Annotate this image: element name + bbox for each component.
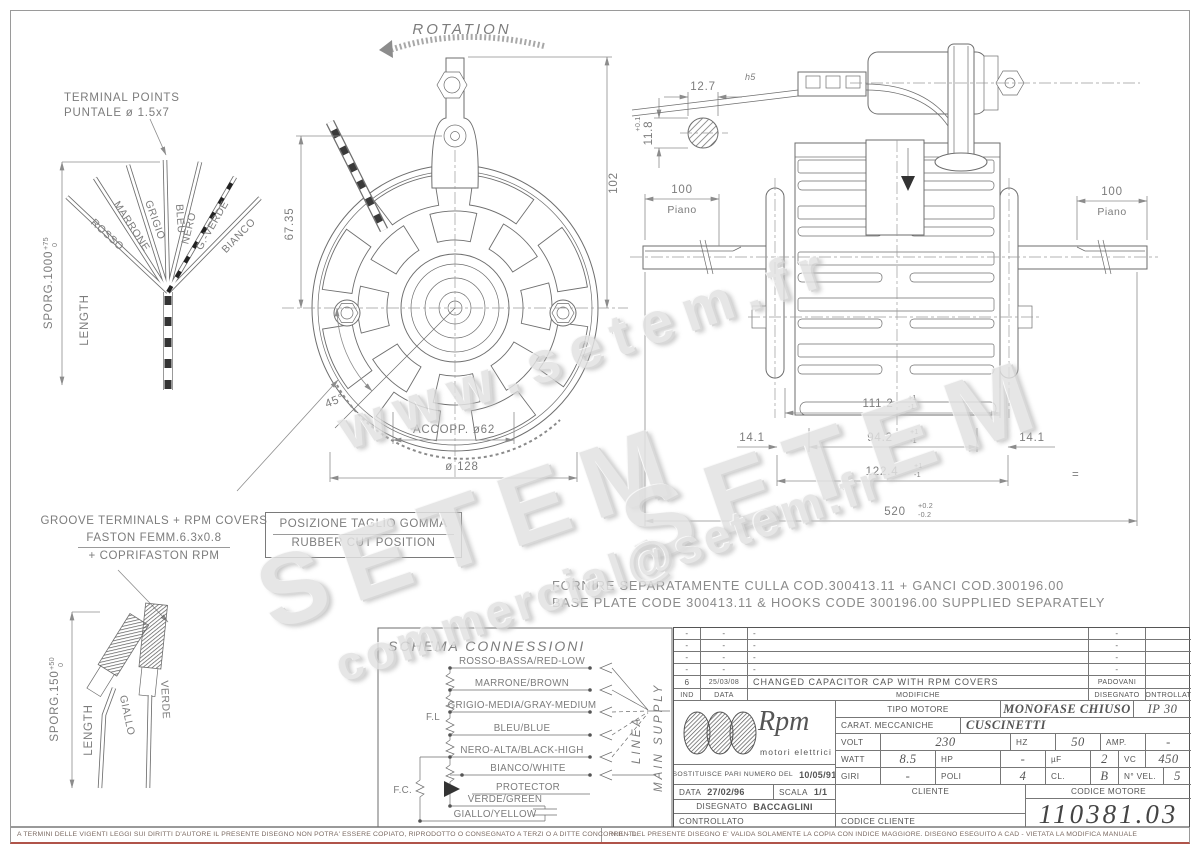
poli-label: POLI	[936, 768, 1001, 785]
ip-value: IP 30	[1134, 701, 1191, 718]
svg-text:-1: -1	[914, 470, 921, 479]
amp-label: AMP.	[1101, 734, 1146, 751]
hz-value: 50	[1056, 734, 1101, 751]
dim-length150-label: LENGTH	[83, 704, 95, 755]
dim-141-right: 14.1	[1019, 432, 1045, 444]
schema-wire-6: PROTECTOR	[496, 782, 560, 793]
giri-value: -	[881, 768, 936, 785]
footer-strip: A TERMINI DELLE VIGENTI LEGGI SUI DIRITT…	[10, 827, 1190, 844]
scala-cell: SCALA 1/1	[774, 785, 836, 800]
side-view: 12.7 h5 11.8 +0.1 -0.1	[630, 44, 1158, 526]
amp-value: -	[1146, 734, 1191, 751]
volt-label: VOLT	[836, 734, 881, 751]
wire-label-giallo: GIALLO	[117, 694, 137, 737]
wire-label-verde: VERDE	[158, 680, 172, 719]
title-block: - - - - - - - - - - - - - - - - 6 25/03/…	[673, 627, 1190, 828]
dim-6735-label: 67.35	[284, 208, 296, 241]
vc-value: 450	[1146, 751, 1191, 768]
dim-102-label: 102	[608, 172, 620, 194]
hook-cover	[866, 140, 924, 235]
cl-value: B	[1091, 768, 1119, 785]
rev-author: PADOVANI	[1089, 676, 1146, 689]
svg-text:+1: +1	[908, 393, 917, 402]
rotation-arrow	[390, 37, 544, 50]
groove-note-line2: FASTON FEMM.6.3x0.8	[78, 530, 229, 548]
disegnato-value: BACCAGLINI	[753, 802, 813, 812]
nvel-label: N° VEL.	[1119, 768, 1164, 785]
schema-fc-label: F.C.	[393, 785, 412, 796]
terminal-block	[798, 72, 866, 96]
hp-value: -	[1001, 751, 1046, 768]
data-value: 27/02/96	[707, 787, 744, 797]
svg-text:+1: +1	[910, 427, 919, 436]
schema-wire-0: ROSSO-BASSA/RED-LOW	[459, 656, 585, 667]
codice-motore-header: CODICE MOTORE	[1026, 785, 1191, 799]
schema-wire-2: GRIGIO-MEDIA/GRAY-MEDIUM	[448, 700, 597, 711]
uf-label: µF	[1046, 751, 1091, 768]
uf-value: 2	[1091, 751, 1119, 768]
schema-wire-4: NERO-ALTA/BLACK-HIGH	[460, 745, 583, 756]
dim-128-label: ø 128	[445, 461, 478, 473]
left-shaft	[643, 246, 766, 269]
data-cell: DATA 27/02/96	[674, 785, 774, 800]
poli-value: 4	[1001, 768, 1046, 785]
mounting-strap	[948, 44, 974, 162]
giri-label: GIRI	[836, 768, 881, 785]
rev-header-ind: IND	[674, 689, 701, 701]
dim-127-tol: h5	[745, 72, 756, 82]
schema-main-supply-label: MAIN SUPPLY	[653, 683, 665, 792]
footer-right: N.B. - DEL PRESENTE DISEGNO E' VALIDA SO…	[611, 831, 1137, 838]
dim-942-label: 94.2	[867, 432, 893, 444]
watt-value: 8.5	[881, 751, 936, 768]
front-view: ROTATION	[237, 21, 628, 491]
rev-header-data: DATA	[701, 689, 748, 701]
rev-index: 6	[674, 676, 701, 689]
dim-sporg1000-label: SPORG.1000 +75 0	[41, 237, 59, 329]
dim-piano-left: Piano	[667, 204, 696, 216]
cl-label: CL.	[1046, 768, 1091, 785]
supply-note-line1: FORNIRE SEPARATAMENTE CULLA COD.300413.1…	[552, 577, 1105, 594]
dim-accopp-label: ACCOPP. ø62	[413, 424, 495, 436]
vc-label: VC	[1119, 751, 1146, 768]
dim-100-left: 100	[671, 184, 693, 196]
capacitor-symbol	[533, 806, 557, 821]
rev-description: CHANGED CAPACITOR CAP WITH RPM COVERS	[748, 676, 1089, 689]
schema-wire-5: BIANCO/WHITE	[490, 763, 566, 774]
supply-note-line2: BASE PLATE CODE 300413.11 & HOOKS CODE 3…	[552, 594, 1105, 611]
svg-text:-0.2: -0.2	[918, 510, 931, 519]
nvel-value: 5	[1164, 768, 1191, 785]
carat-label: CARAT. MECCANICHE	[836, 718, 961, 734]
watt-label: WATT	[836, 751, 881, 768]
dim-127-label: 12.7	[690, 81, 716, 93]
volt-value: 230	[881, 734, 1011, 751]
rubber-line1: POSIZIONE TAGLIO GOMMA	[273, 516, 453, 535]
hp-label: HP	[936, 751, 1001, 768]
faston-connector-giallo	[84, 614, 148, 699]
disegnato-cell: DISEGNATO BACCAGLINI	[674, 800, 836, 814]
carat-value: CUSCINETTI	[961, 718, 1191, 734]
dim-piano-right: Piano	[1097, 206, 1126, 218]
terminal-fan-diagram: TERMINAL POINTS PUNTALE ø 1.5x7	[41, 92, 260, 390]
angle-45-label: 45°	[323, 392, 346, 411]
codice-motore-value: 110381.03	[1026, 799, 1191, 829]
lower-terminals-diagram: GIALLO VERDE SPORG.150 +50 0 LENGTH	[47, 570, 172, 788]
rev-header-modifiche: MODIFICHE	[748, 689, 1089, 701]
svg-text:+50: +50	[47, 657, 56, 670]
tipo-motore-value: MONOFASE CHIUSO	[1001, 701, 1134, 718]
rubber-cut-box: POSIZIONE TAGLIO GOMMA RUBBER CUT POSITI…	[265, 512, 462, 558]
cliente-cell: CLIENTE	[836, 785, 1026, 814]
wire-label-rosso: ROSSO	[88, 217, 126, 253]
schema-wire-3: BLEU/BLUE	[494, 723, 551, 734]
groove-note: GROOVE TERMINALS + RPM COVERS FASTON FEM…	[36, 513, 272, 565]
sostituisce-cell: SOSTITUISCE PARI NUMERO DEL 10/05/91	[674, 765, 836, 785]
terminal-points-subtitle: PUNTALE ø 1.5x7	[64, 107, 170, 119]
rev-header-controllato: CONTROLLATO	[1146, 689, 1191, 701]
schema-linea-label: LINEA	[631, 716, 643, 764]
drawing-sheet: TERMINAL POINTS PUNTALE ø 1.5x7	[0, 0, 1200, 849]
dim-1112-label: 111.2	[862, 398, 893, 410]
position-arrow	[237, 380, 338, 491]
rev-ind: -	[674, 628, 701, 640]
scala-value: 1/1	[814, 787, 827, 797]
logo-subtitle: motori elettrici	[760, 747, 832, 757]
dim-118-label: 11.8	[643, 121, 655, 146]
dim-length-label: LENGTH	[79, 294, 91, 345]
footer-left: A TERMINI DELLE VIGENTI LEGGI SUI DIRITT…	[17, 831, 637, 838]
winding-bus	[416, 668, 454, 821]
schema-wire-1: MARRONE/BROWN	[475, 678, 569, 689]
sostituisce-date: 10/05/91	[799, 770, 836, 780]
terminal-points-title: TERMINAL POINTS	[64, 92, 180, 104]
svg-text:+1: +1	[914, 461, 923, 470]
svg-text:SPORG.1000: SPORG.1000	[43, 251, 55, 329]
protector-symbol	[444, 781, 460, 797]
rev-header-disegnato: DISEGNATO	[1089, 689, 1146, 701]
schema-title: SCHEMA CONNESSIONI	[388, 638, 585, 654]
schema-wire-8: GIALLO/YELLOW	[454, 809, 537, 820]
svg-text:0: 0	[50, 243, 59, 247]
leader-line	[150, 119, 166, 155]
right-bolt	[550, 300, 576, 326]
rubber-line2: RUBBER CUT POSITION	[266, 535, 461, 552]
supply-note: FORNIRE SEPARATAMENTE CULLA COD.300413.1…	[552, 577, 1105, 611]
connection-schema: SCHEMA CONNESSIONI	[378, 628, 672, 828]
exit-cable	[330, 122, 384, 230]
dim-141-left: 14.1	[739, 432, 765, 444]
svg-text:SPORG.150: SPORG.150	[49, 670, 61, 741]
dim-1224-label: 122.4	[866, 466, 899, 478]
svg-text:+75: +75	[41, 237, 50, 250]
schema-wire-7: VERDE/GREEN	[468, 794, 543, 805]
dim-100-right: 100	[1101, 186, 1123, 198]
dim-520-label: 520	[884, 506, 906, 518]
svg-text:+0.2: +0.2	[918, 501, 933, 510]
svg-text:-1: -1	[910, 436, 917, 445]
dim-sporg150-label: SPORG.150 +50 0	[47, 657, 65, 741]
groove-note-line1: GROOVE TERMINALS + RPM COVERS	[36, 513, 272, 530]
svg-text:-1: -1	[908, 402, 915, 411]
tipo-motore-label: TIPO MOTORE	[836, 701, 1001, 718]
equal-sign: =	[1072, 469, 1080, 481]
svg-text:0: 0	[56, 663, 65, 667]
logo-name: Rpm	[758, 706, 809, 738]
schema-fl-label: F.L	[426, 712, 440, 723]
mounting-bracket	[432, 58, 478, 188]
groove-note-line3: + COPRIFASTON RPM	[36, 548, 272, 565]
rev-date: 25/03/08	[701, 676, 748, 689]
capacitor-assembly	[632, 44, 1024, 171]
hz-label: HZ	[1011, 734, 1056, 751]
svg-text:+0.1: +0.1	[633, 117, 642, 132]
